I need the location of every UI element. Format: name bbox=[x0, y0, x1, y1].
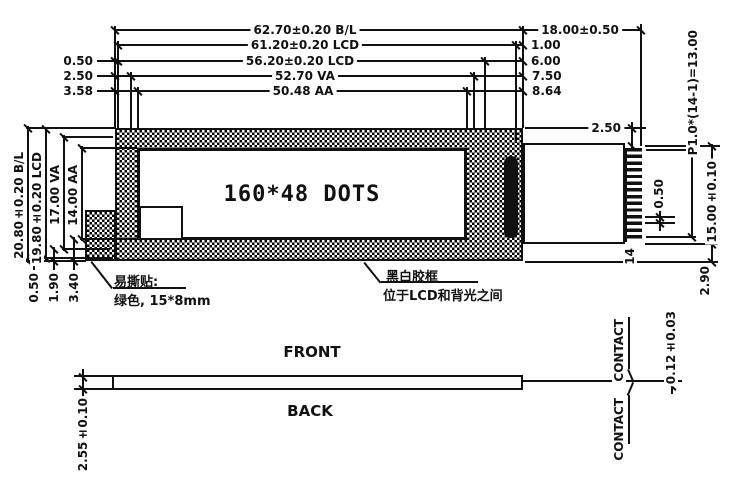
dim-pin-top-offset: 2.50 bbox=[588, 121, 624, 135]
front-view-label: FRONT bbox=[283, 343, 340, 361]
dim-va-height: 17.00 VA bbox=[48, 163, 62, 227]
dim-left-offset-3-58: 3.58 bbox=[60, 84, 96, 98]
leader-line bbox=[364, 262, 382, 283]
dim-tab-width: 18.00±0.50 bbox=[538, 23, 622, 37]
side-view-bar bbox=[112, 375, 523, 390]
dim-offset-8-64: 8.64 bbox=[529, 84, 565, 98]
pin-contacts bbox=[625, 148, 642, 242]
corner-notch bbox=[139, 206, 183, 240]
display-resolution-label: 160*48 DOTS bbox=[224, 182, 381, 207]
extension-line bbox=[628, 395, 630, 444]
dim-left-offset-2-50: 2.50 bbox=[60, 69, 96, 83]
dim-pin-width: 0.50 bbox=[652, 177, 666, 211]
black-strip bbox=[504, 156, 518, 238]
dim-bottom-1-90: 1.90 bbox=[47, 271, 61, 305]
dim-bottom-2-90: 2.90 bbox=[698, 264, 712, 298]
leader-line bbox=[627, 382, 634, 395]
contact-label-bottom: CONTACT bbox=[612, 396, 626, 463]
dim-bl-height: 20.80±0.20 B/L bbox=[12, 150, 26, 261]
lcd-module-dimension-drawing: 160*48 DOTS 62.70±0.20 B/L 18.00±0.50 61… bbox=[0, 0, 750, 478]
dim-aa-height: 14.00 AA bbox=[66, 163, 80, 228]
extension-line bbox=[691, 150, 693, 237]
extension-line bbox=[473, 72, 475, 128]
extension-line bbox=[27, 126, 29, 263]
sticker-note-line2: 绿色, 15*8mm bbox=[114, 290, 211, 309]
dim-va-width: 52.70 VA bbox=[272, 69, 338, 83]
peel-sticker bbox=[85, 210, 116, 261]
dimension-line bbox=[525, 127, 646, 129]
extension-line bbox=[81, 146, 83, 241]
frame-note-line2: 位于LCD和背光之间 bbox=[383, 285, 503, 304]
dimension-line bbox=[62, 136, 113, 138]
dim-offset-1-00: 1.00 bbox=[528, 38, 564, 52]
viewing-area: 160*48 DOTS bbox=[137, 148, 467, 240]
dimension-line bbox=[80, 147, 137, 149]
dimension-line bbox=[525, 261, 718, 263]
dim-offset-6-00: 6.00 bbox=[528, 54, 564, 68]
extension-line bbox=[628, 317, 630, 369]
leader-line bbox=[91, 261, 113, 289]
dim-lcd-inner-width: 56.20±0.20 LCD bbox=[243, 54, 357, 68]
dim-lcd-outer-width: 61.20±0.20 LCD bbox=[248, 38, 362, 52]
dim-offset-7-50: 7.50 bbox=[529, 69, 565, 83]
extension-line bbox=[484, 57, 486, 128]
contact-label-top: CONTACT bbox=[612, 317, 626, 384]
dimension-line bbox=[62, 248, 110, 250]
dim-bottom-3-40: 3.40 bbox=[67, 271, 81, 305]
dimension-line bbox=[26, 127, 115, 129]
extension-line bbox=[117, 41, 119, 128]
dim-bl-width: 62.70±0.20 B/L bbox=[251, 23, 360, 37]
back-view-label: BACK bbox=[287, 402, 333, 420]
dim-side-thickness: 2.55±0.10 bbox=[76, 396, 90, 473]
dim-bottom-0-50: 0.50 bbox=[27, 271, 41, 305]
dim-left-offset-0-50: 0.50 bbox=[60, 54, 96, 68]
extension-line bbox=[45, 127, 47, 260]
extension-line bbox=[515, 41, 517, 143]
sticker-note-line1: 易撕贴: bbox=[114, 271, 158, 290]
frame-note-line1: 黑白胶框 bbox=[386, 266, 438, 285]
extension-line bbox=[63, 135, 65, 251]
extension-line bbox=[659, 211, 661, 231]
dim-tab-height: 15.00±0.10 bbox=[705, 159, 719, 245]
extension-line bbox=[640, 24, 642, 146]
dim-contact-thickness: 0.12±0.03 bbox=[664, 309, 678, 386]
connector-tab bbox=[523, 143, 625, 244]
dimension-line bbox=[646, 236, 696, 238]
pin-count-label: 14 bbox=[623, 246, 637, 267]
dimension-line bbox=[80, 238, 137, 240]
dim-lcd-height: 19.80±0.20 LCD bbox=[30, 150, 44, 266]
dim-pin-pitch: P1.0*(14-1)=13.00 bbox=[686, 28, 700, 157]
dim-aa-width: 50.48 AA bbox=[270, 84, 337, 98]
extension-line bbox=[130, 72, 132, 128]
